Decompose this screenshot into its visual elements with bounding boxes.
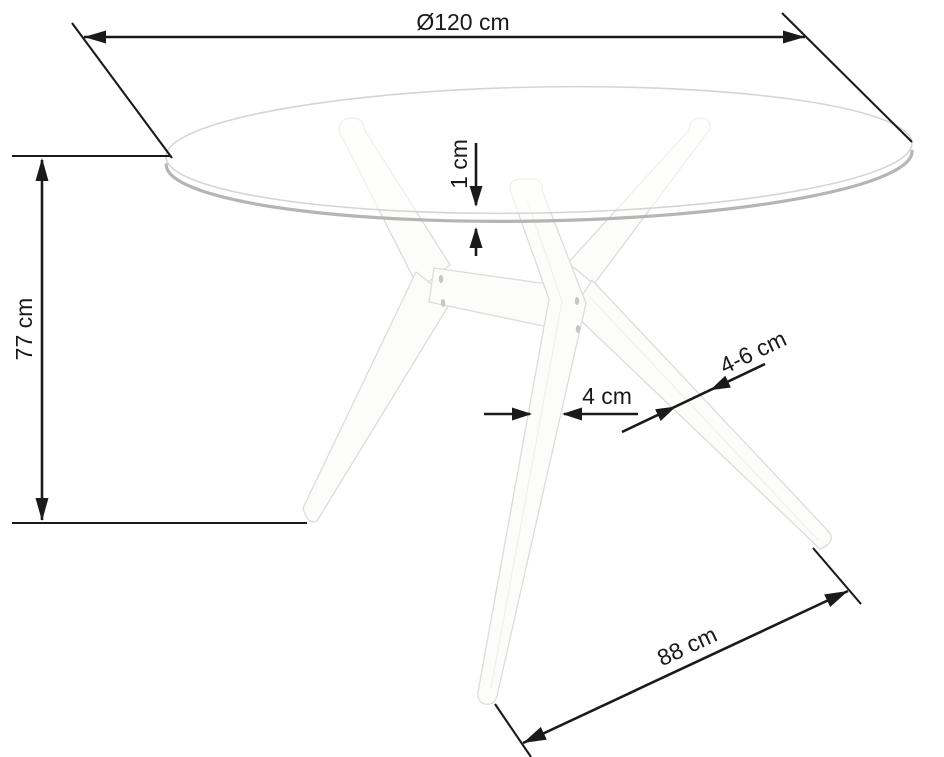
dimension-base-span: 88 cm [495, 548, 861, 757]
arrowhead-up-icon [470, 227, 483, 248]
leg-grain-right [588, 295, 818, 540]
arrowhead-down-icon [36, 498, 49, 521]
leg-width-label: 4 cm [582, 383, 632, 409]
dimension-height: 77 cm [11, 156, 307, 523]
leg-lower-left [303, 272, 452, 522]
glass-top [165, 80, 913, 228]
arrowhead-downleft-icon [523, 727, 547, 743]
dowel-mark [439, 275, 443, 283]
dimension-line [523, 591, 848, 743]
arrowhead-left-icon [562, 408, 582, 421]
diagram-canvas: Ø120 cm 77 cm 1 cm 4 cm [0, 0, 944, 757]
arrowhead-left-icon [84, 31, 106, 44]
glass-thickness-label: 1 cm [446, 139, 472, 189]
diameter-label: Ø120 cm [416, 9, 509, 35]
arrowhead-upright-icon [655, 407, 676, 422]
dowel-mark [575, 297, 579, 305]
arrowhead-upright-icon [824, 591, 848, 607]
dowel-mark [576, 325, 580, 333]
extension-line [495, 704, 531, 757]
dowel-mark [441, 299, 445, 307]
base-span-label: 88 cm [653, 621, 721, 671]
table-dimension-diagram: Ø120 cm 77 cm 1 cm 4 cm [0, 0, 944, 757]
leg-front [478, 179, 586, 704]
extension-line [72, 23, 172, 158]
height-label: 77 cm [11, 298, 37, 361]
arrowhead-up-icon [36, 158, 49, 181]
